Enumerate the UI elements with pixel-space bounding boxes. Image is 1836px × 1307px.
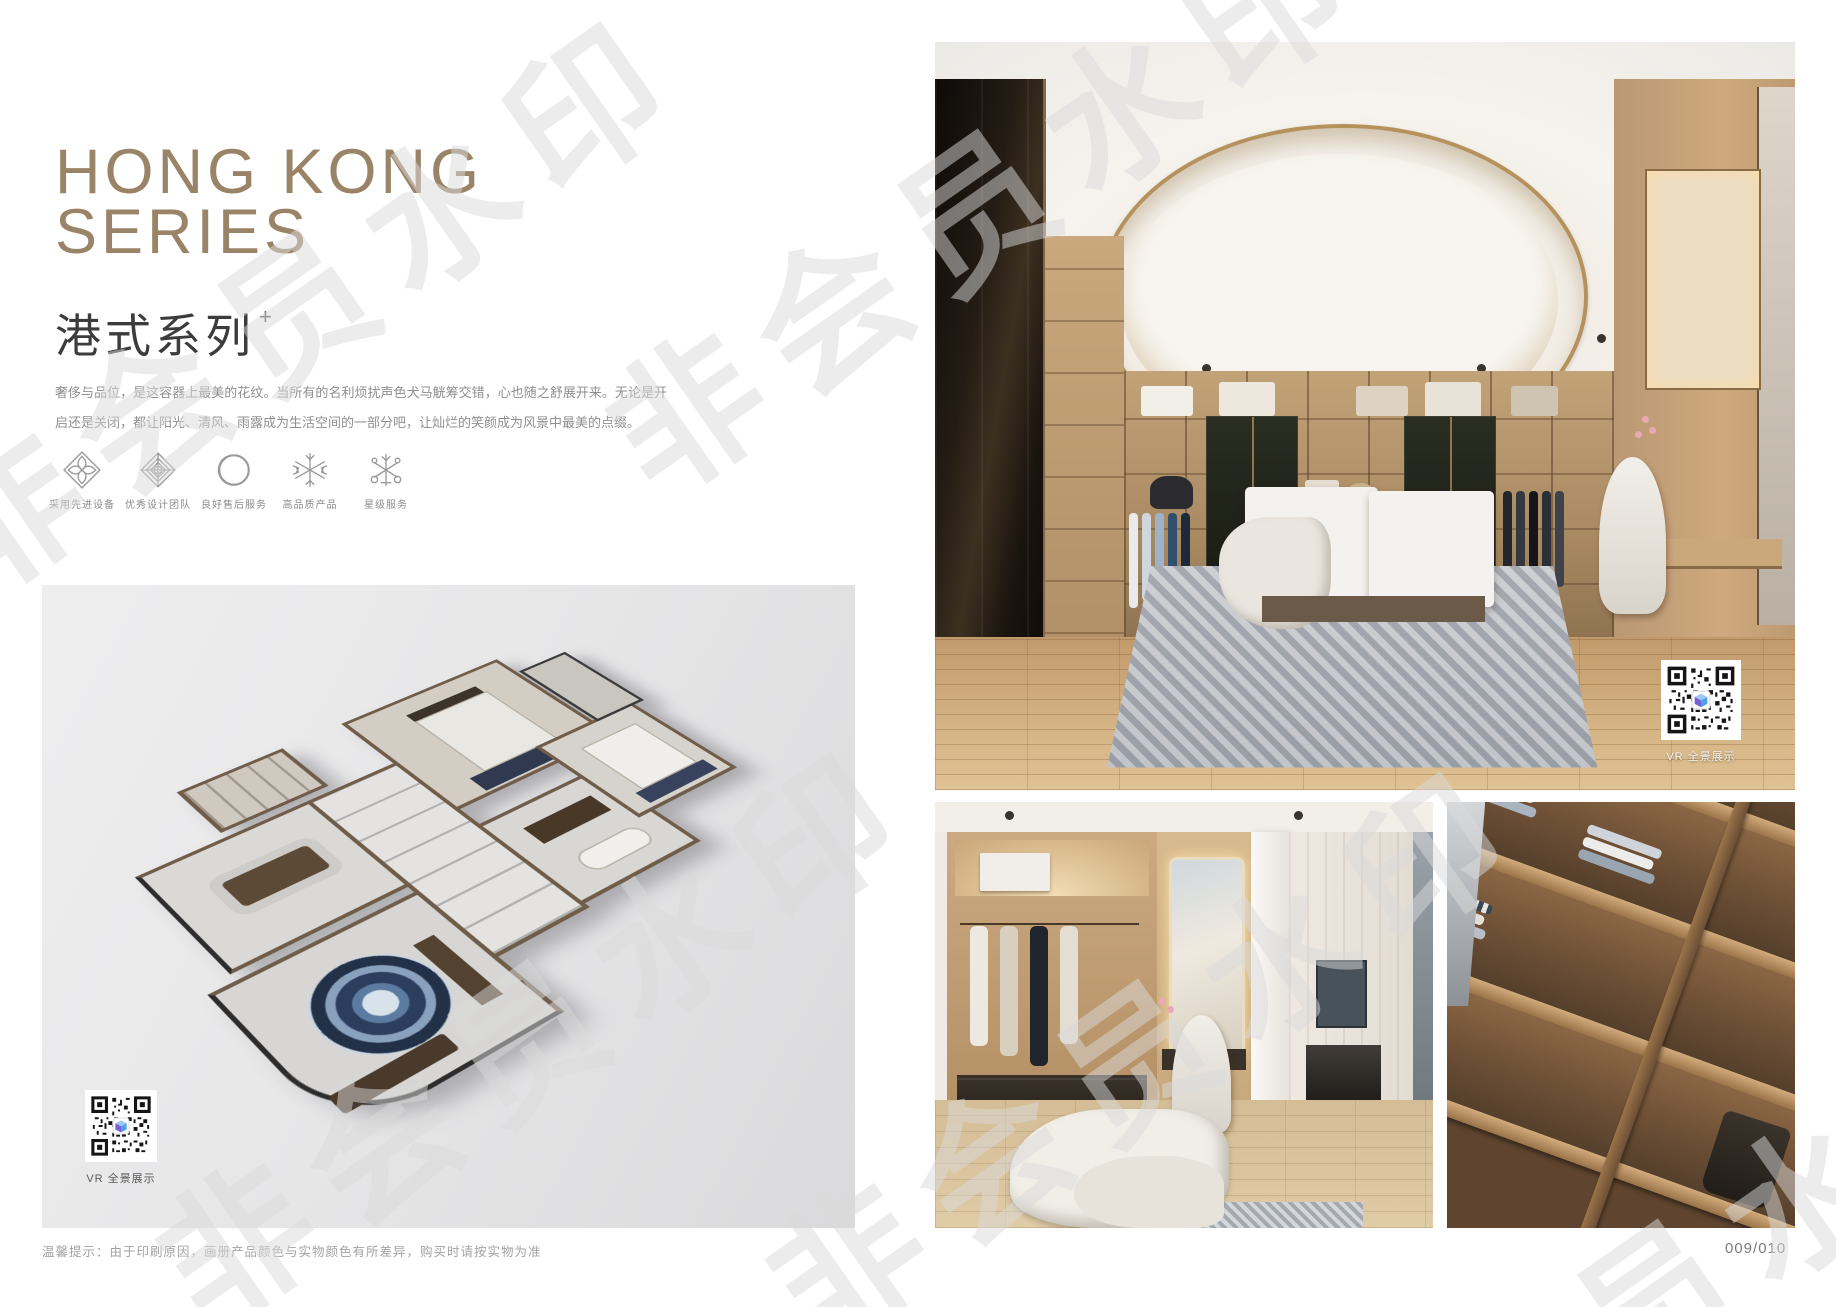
- qr-image: [85, 1090, 157, 1162]
- floral-diamond-icon: [62, 450, 102, 490]
- shelf-box: [1356, 386, 1408, 416]
- hanging-garment: [1000, 926, 1018, 1056]
- feature-label: 高品质产品: [283, 496, 338, 511]
- vr-qr-code: VR 全景展示: [85, 1090, 157, 1186]
- star-flake-icon: [366, 450, 406, 490]
- sideboard: [1306, 1045, 1381, 1102]
- woven-diamond-icon: [138, 450, 178, 490]
- plan-dining-table: [220, 845, 331, 908]
- sliding-mirror-door: [1413, 832, 1433, 1113]
- shelf-box: [1425, 382, 1481, 418]
- hanging-garment: [1030, 926, 1048, 1066]
- footer-disclaimer: 温馨提示：由于印刷原因，画册产品颜色与实物颜色有所差异，购买时请按实物为准: [42, 1241, 542, 1260]
- wardrobe-room-photo: VR 全景展示: [935, 42, 1795, 790]
- hanging-rail: [960, 923, 1139, 925]
- wall-art: [1316, 960, 1367, 1028]
- floorplan-render: [66, 651, 818, 1126]
- feature-item: 采用先进设备: [50, 450, 114, 511]
- snowflake-icon: [290, 450, 330, 490]
- flower-decor: [1167, 1006, 1174, 1013]
- feature-item: 高品质产品: [278, 450, 342, 511]
- bed-mattress: [1369, 491, 1494, 607]
- flower-decor: [1642, 416, 1649, 423]
- page-number: 009/010: [1725, 1240, 1786, 1257]
- feature-item: 优秀设计团队: [126, 450, 190, 511]
- vanity-chair: [1599, 457, 1666, 614]
- vr-label: VR 全景展示: [1666, 748, 1735, 764]
- feature-label: 优秀设计团队: [125, 496, 191, 511]
- qr-image: [1661, 660, 1741, 740]
- downlight: [1597, 334, 1606, 343]
- hanging-garment: [1060, 926, 1078, 1044]
- ring-icon: [214, 450, 254, 490]
- plan-desk: [523, 795, 611, 843]
- ring-icon-wrap: 良好售后服务: [202, 450, 266, 511]
- vr-label: VR 全景展示: [86, 1170, 155, 1186]
- feature-list: 采用先进设备 优秀设计团队 良好售后服务 高品质产品: [50, 450, 418, 511]
- feature-label: 采用先进设备: [49, 496, 115, 511]
- bed-base: [1262, 596, 1486, 622]
- downlight: [1294, 811, 1303, 820]
- feature-label: 良好售后服务: [201, 496, 267, 511]
- catalog-page: HONG KONG SERIES 港式系列+ 奢侈与品位，是这容器上最美的花纹。…: [0, 0, 1836, 1307]
- dressing-area-photo: [935, 802, 1433, 1228]
- shelf-pillow: [1141, 386, 1193, 416]
- plan-bathtub: [572, 824, 659, 874]
- title-line-1: HONG KONG: [55, 142, 483, 202]
- vr-qr-code: VR 全景展示: [1661, 660, 1741, 764]
- floorplan-image: VR 全景展示: [42, 585, 855, 1228]
- handbag: [1150, 476, 1193, 510]
- flower-decor: [1649, 427, 1656, 434]
- shelf-pillow: [1219, 382, 1275, 416]
- plus-mark: +: [259, 304, 276, 329]
- series-title-cn-text: 港式系列: [55, 310, 255, 362]
- hanging-garment: [970, 926, 988, 1046]
- series-title-en: HONG KONG SERIES: [55, 142, 483, 262]
- feature-item: 星级服务: [354, 450, 418, 511]
- shelf-closeup-photo: [1447, 802, 1795, 1228]
- storage-box: [980, 853, 1050, 891]
- series-description: 奢侈与品位，是这容器上最美的花纹。当所有的名利烦扰声色犬马觥筹交错，心也随之舒展…: [55, 378, 667, 438]
- flower-decor: [1635, 431, 1642, 438]
- title-line-2: SERIES: [55, 202, 483, 262]
- shelf-box: [1511, 386, 1558, 416]
- series-title-cn: 港式系列+: [55, 300, 276, 366]
- downlight: [1005, 811, 1014, 820]
- folded-clothes-stack: [1577, 824, 1664, 885]
- flower-decor: [1159, 998, 1166, 1005]
- lighted-niche: [1645, 169, 1761, 390]
- draped-blanket: [1074, 1156, 1223, 1228]
- feature-label: 星级服务: [364, 496, 408, 511]
